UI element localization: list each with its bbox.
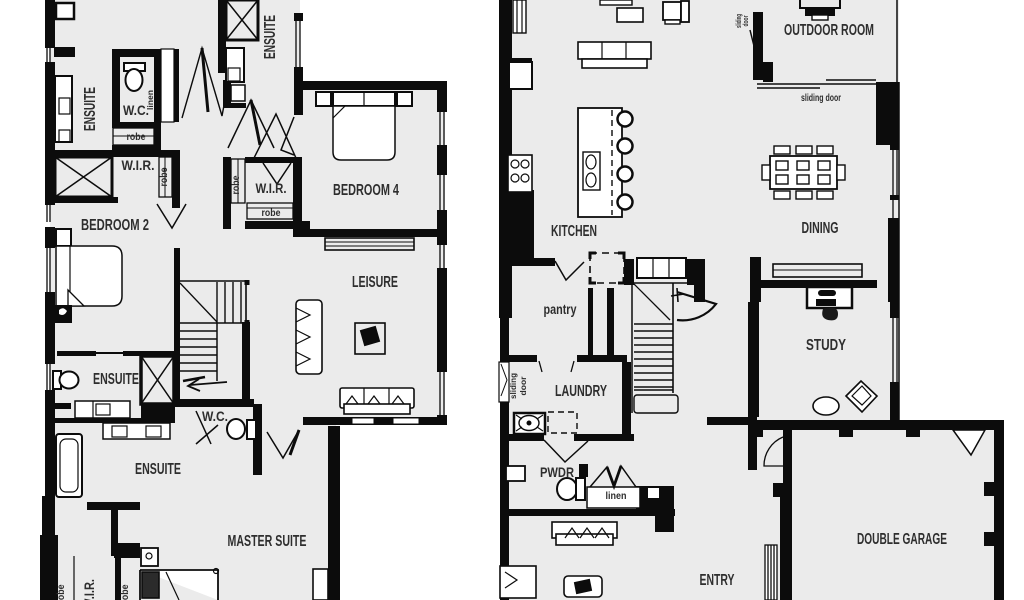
svg-text:pantry: pantry <box>544 301 577 317</box>
svg-text:PWDR: PWDR <box>540 464 574 480</box>
svg-text:MASTER SUITE: MASTER SUITE <box>228 533 307 550</box>
svg-text:DOUBLE GARAGE: DOUBLE GARAGE <box>857 531 947 548</box>
svg-text:robe: robe <box>158 167 170 186</box>
svg-text:robe: robe <box>55 584 67 600</box>
svg-text:door: door <box>519 377 528 396</box>
svg-text:robe: robe <box>119 584 131 600</box>
svg-text:LAUNDRY: LAUNDRY <box>555 383 607 400</box>
svg-text:ENSUITE: ENSUITE <box>93 371 139 388</box>
svg-text:ENSUITE: ENSUITE <box>135 461 181 478</box>
svg-text:BEDROOM 2: BEDROOM 2 <box>81 217 149 234</box>
svg-text:BEDROOM 4: BEDROOM 4 <box>333 182 399 199</box>
svg-text:robe: robe <box>230 175 242 194</box>
svg-text:ENSUITE: ENSUITE <box>82 87 99 131</box>
svg-text:W.I.R.: W.I.R. <box>256 180 287 196</box>
svg-text:LEISURE: LEISURE <box>352 274 398 291</box>
svg-text:linen: linen <box>146 90 155 110</box>
svg-text:W.I.R.: W.I.R. <box>122 157 155 173</box>
svg-text:KITCHEN: KITCHEN <box>551 223 597 240</box>
svg-text:sliding: sliding <box>736 14 743 28</box>
svg-text:STUDY: STUDY <box>806 337 846 354</box>
svg-text:robe: robe <box>127 131 146 143</box>
svg-text:linen: linen <box>606 491 627 502</box>
svg-text:ENSUITE: ENSUITE <box>262 15 279 59</box>
svg-text:sliding door: sliding door <box>801 93 841 104</box>
svg-text:W.I.R.: W.I.R. <box>81 579 97 600</box>
svg-text:DINING: DINING <box>802 220 839 237</box>
svg-text:robe: robe <box>262 207 281 219</box>
svg-text:OUTDOOR ROOM: OUTDOOR ROOM <box>784 22 874 39</box>
svg-text:W.C.: W.C. <box>202 408 228 424</box>
svg-text:door: door <box>743 15 750 26</box>
svg-text:sliding: sliding <box>509 373 518 399</box>
svg-text:ENTRY: ENTRY <box>700 572 735 589</box>
